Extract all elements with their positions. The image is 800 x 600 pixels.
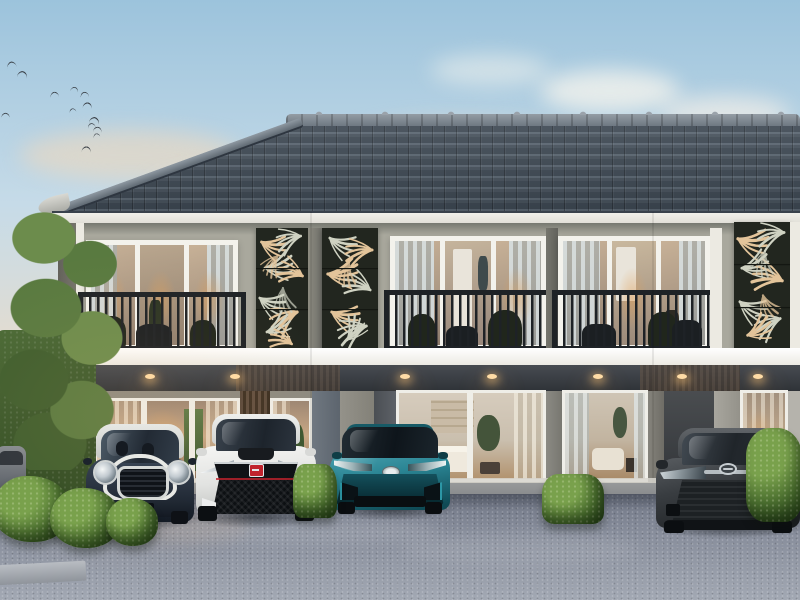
bird-icon bbox=[50, 92, 60, 98]
wheel bbox=[425, 502, 442, 514]
bird-icon bbox=[80, 91, 91, 98]
interior-table bbox=[480, 462, 500, 474]
bird-icon bbox=[82, 102, 93, 108]
lower-intake bbox=[354, 496, 426, 507]
downlight bbox=[487, 374, 497, 379]
curtain bbox=[565, 393, 589, 479]
bush bbox=[106, 498, 158, 546]
bumper-mesh bbox=[212, 480, 300, 514]
side-mirror bbox=[332, 452, 342, 459]
car-toyota-prius bbox=[330, 424, 450, 514]
porch-ceiling bbox=[58, 365, 800, 391]
windshield bbox=[342, 427, 438, 458]
interior-sofa bbox=[592, 448, 624, 470]
side-mirror bbox=[196, 448, 207, 456]
downlight bbox=[230, 374, 240, 379]
wood-soffit bbox=[640, 365, 740, 391]
wheel bbox=[664, 521, 684, 533]
leaf-screen-panel-b bbox=[322, 228, 378, 350]
wheel bbox=[772, 521, 792, 533]
interior-frame bbox=[478, 256, 488, 291]
cloud bbox=[540, 70, 680, 112]
headlight bbox=[93, 460, 118, 485]
trim-strip bbox=[710, 228, 722, 350]
hood-scoop bbox=[238, 448, 274, 460]
glass-door-unit-3 bbox=[562, 390, 648, 482]
toyota-badge bbox=[719, 463, 737, 475]
door-mullion bbox=[467, 393, 473, 479]
bird-icon bbox=[17, 71, 30, 79]
roof-ridge bbox=[286, 114, 800, 126]
car-seats bbox=[116, 441, 128, 456]
headlight bbox=[166, 460, 191, 485]
cloud bbox=[430, 55, 550, 85]
trim-strip bbox=[790, 222, 800, 350]
wheel bbox=[171, 511, 188, 524]
downlight bbox=[400, 374, 410, 379]
red-accent-line bbox=[216, 478, 296, 480]
windshield bbox=[216, 419, 296, 451]
leaf-screen-panel-c bbox=[734, 222, 790, 350]
downlight bbox=[145, 374, 155, 379]
side-mirror bbox=[305, 448, 316, 456]
bush bbox=[746, 428, 800, 522]
side-mirror bbox=[438, 452, 448, 459]
downlight bbox=[593, 374, 603, 379]
grille bbox=[117, 466, 169, 500]
fog-light bbox=[666, 504, 680, 516]
unit-seam bbox=[652, 212, 654, 490]
bush bbox=[542, 474, 604, 524]
wheel bbox=[198, 506, 217, 521]
scene bbox=[0, 0, 800, 600]
glass-door-interior bbox=[565, 393, 645, 479]
interior-plant bbox=[613, 407, 627, 438]
pavement-reflection bbox=[400, 534, 640, 564]
unit-divider-pier bbox=[546, 391, 562, 483]
bird-icon bbox=[70, 86, 80, 93]
curtain bbox=[514, 393, 543, 479]
honda-badge bbox=[249, 464, 264, 477]
side-mirror bbox=[83, 458, 92, 465]
wheel bbox=[338, 502, 355, 514]
bird-icon bbox=[6, 61, 18, 69]
bush bbox=[293, 464, 337, 518]
side-mirror bbox=[656, 460, 668, 469]
leaf-screen-panel-a bbox=[256, 228, 308, 350]
curtain bbox=[634, 393, 645, 479]
interior-plant bbox=[477, 415, 500, 451]
downlight bbox=[677, 374, 687, 379]
downlight bbox=[753, 374, 763, 379]
wood-soffit bbox=[236, 365, 340, 391]
